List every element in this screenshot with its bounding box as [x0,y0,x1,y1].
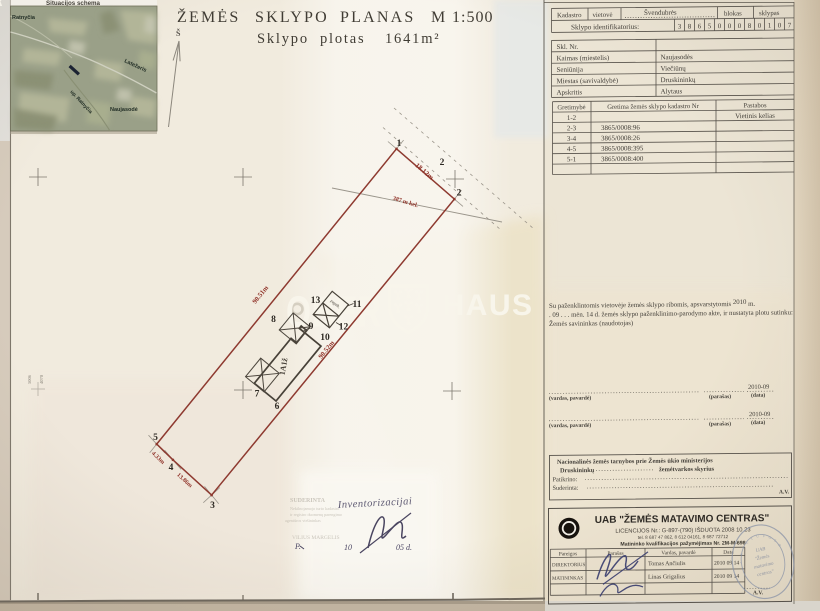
svg-text:Gretima žemės sklypo kadastro: Gretima žemės sklypo kadastro Nr [607,103,699,111]
svg-text:VILIUS MARGELIS: VILIUS MARGELIS [292,535,340,541]
svg-text:tel. 8 687 47 862, 8 612 04161: tel. 8 687 47 862, 8 612 04161, 8 687 72… [638,534,729,540]
svg-text:Pareigos: Pareigos [559,551,578,557]
svg-text:1: 1 [397,139,402,149]
svg-text:Sklypo: Sklypo [257,31,309,47]
svg-text:SKLYPO: SKLYPO [255,9,329,26]
svg-text:Seniūnija: Seniūnija [557,66,584,74]
svg-text:6: 6 [698,22,702,30]
svg-text:vietovė: vietovė [593,12,613,19]
svg-text:4070: 4070 [39,374,44,384]
svg-text:5-1: 5-1 [567,155,577,163]
svg-text:Nekilnojamojo turto kadastro: Nekilnojamojo turto kadastro [290,506,339,511]
svg-text:3865/0008:96: 3865/0008:96 [601,124,640,132]
svg-text:sklypas: sklypas [759,10,780,17]
svg-text:Druskininkų: Druskininkų [661,76,696,84]
svg-text:2: 2 [457,189,462,199]
svg-text:2010 09 14: 2010 09 14 [714,560,739,566]
svg-text:1:500: 1:500 [452,9,493,26]
svg-text:10: 10 [344,543,352,552]
svg-text:Vardas, pavardė: Vardas, pavardė [661,550,696,556]
svg-text:Žemės savininkas (naudotojas): Žemės savininkas (naudotojas) [549,319,633,328]
svg-text:3-4: 3-4 [567,135,577,143]
svg-text:8: 8 [271,315,276,325]
svg-text:DIREKTORIUS: DIREKTORIUS [552,563,585,568]
svg-text:(vardas, pavardė): (vardas, pavardė) [549,395,591,402]
svg-text:MATININKAS: MATININKAS [552,576,583,581]
svg-text:(parašas): (parašas) [709,393,731,400]
svg-text:Alytaus: Alytaus [661,87,683,95]
svg-text:Miestas (savivaldybė): Miestas (savivaldybė) [557,77,619,86]
svg-text:Viečiūnų: Viečiūnų [661,65,687,73]
svg-text:Tomas Ančiulis: Tomas Ančiulis [648,561,686,567]
svg-text:M: M [431,9,446,26]
svg-text:Naujasodė: Naujasodė [110,107,138,113]
svg-text:(vardas, pavardė): (vardas, pavardė) [549,422,591,429]
svg-text:1-2: 1-2 [567,114,577,122]
svg-text:Vietinis kelias: Vietinis kelias [735,112,775,120]
svg-text:Naujasodės: Naujasodės [661,53,694,61]
svg-text:0: 0 [718,22,722,30]
svg-text:0: 0 [778,22,782,30]
svg-text:Druskininkų: Druskininkų [560,467,595,474]
svg-text:Patikrino:: Patikrino: [553,476,578,483]
svg-text:Gretimybė: Gretimybė [557,104,585,111]
svg-text:5: 5 [153,433,158,443]
svg-text:agentūros viršininkas: agentūros viršininkas [285,518,321,523]
svg-text:0: 0 [728,22,732,30]
svg-text:Skl. Nr.: Skl. Nr. [557,43,579,51]
svg-text:(data): (data) [751,392,765,399]
svg-text:10: 10 [320,333,330,343]
svg-text:Linas Grigalius: Linas Grigalius [648,574,686,580]
svg-text:SUDERINTA: SUDERINTA [290,498,326,504]
svg-text:2010-09: 2010-09 [749,411,770,418]
svg-text:(data): (data) [751,419,765,426]
svg-text:7: 7 [255,390,260,400]
svg-text:Suderinta:: Suderinta: [553,485,579,492]
svg-text:Kadastro: Kadastro [557,12,582,19]
svg-text:3: 3 [210,501,215,511]
svg-text:5: 5 [708,22,712,30]
svg-text:0: 0 [758,22,762,30]
svg-text:2-3: 2-3 [567,124,577,132]
svg-text:2: 2 [440,158,445,168]
svg-text:3865/0008:26: 3865/0008:26 [601,134,640,142]
svg-text:Pastabos: Pastabos [743,102,767,109]
svg-text:P.: P. [294,542,301,551]
svg-text:7: 7 [788,21,792,29]
svg-text:Nacionalinės žemės tarnybos pr: Nacionalinės žemės tarnybos prie Žemės ū… [557,456,713,466]
svg-text:6: 6 [275,402,280,412]
svg-text:HAUS: HAUS [442,289,533,322]
svg-text:Švendubrės: Švendubrės [644,9,677,17]
svg-text:9: 9 [309,322,314,332]
svg-text:Ratnyčia: Ratnyčia [12,15,36,21]
svg-text:Kaimas (miestelis): Kaimas (miestelis) [557,54,610,63]
svg-text:4-5: 4-5 [567,145,577,153]
svg-text:A.V.: A.V. [753,590,764,596]
svg-text:A.V.: A.V. [779,489,790,495]
svg-text:3: 3 [678,23,682,31]
svg-text:LICENCIJOS Nr.: G-897-(790) IŠ: LICENCIJOS Nr.: G-897-(790) IŠDUOTA 2008… [615,526,750,534]
svg-text:8: 8 [748,22,752,30]
svg-text:1: 1 [768,22,772,30]
svg-text:ir registro duomenų parengimo: ir registro duomenų parengimo [290,512,342,517]
svg-text:12: 12 [339,323,349,333]
svg-text:PLANAS: PLANAS [340,9,415,26]
svg-text:Apskritis: Apskritis [557,88,583,96]
svg-text:13: 13 [311,296,321,306]
svg-text:3865/0008:400: 3865/0008:400 [601,155,644,163]
svg-text:8: 8 [688,22,692,30]
svg-text:05 d.: 05 d. [396,543,412,552]
svg-text:2010-09: 2010-09 [748,384,769,391]
svg-text:11: 11 [353,300,362,310]
svg-text:5006: 5006 [27,374,32,384]
svg-text:0: 0 [738,22,742,30]
svg-text:žemėtvarkos skyrius: žemėtvarkos skyrius [659,466,715,474]
svg-text:Š: Š [176,28,181,38]
svg-text:plotas: plotas [320,31,365,47]
svg-text:(parašas): (parašas) [709,420,731,427]
svg-text:1641m²: 1641m² [385,31,440,47]
svg-text:4: 4 [169,463,174,473]
svg-text:ŽEMĖS: ŽEMĖS [177,7,240,26]
svg-text:blokas: blokas [724,10,742,17]
svg-text:Sklypo identifikatorius:: Sklypo identifikatorius: [571,23,639,32]
svg-text:3865/0008:395: 3865/0008:395 [601,144,644,152]
